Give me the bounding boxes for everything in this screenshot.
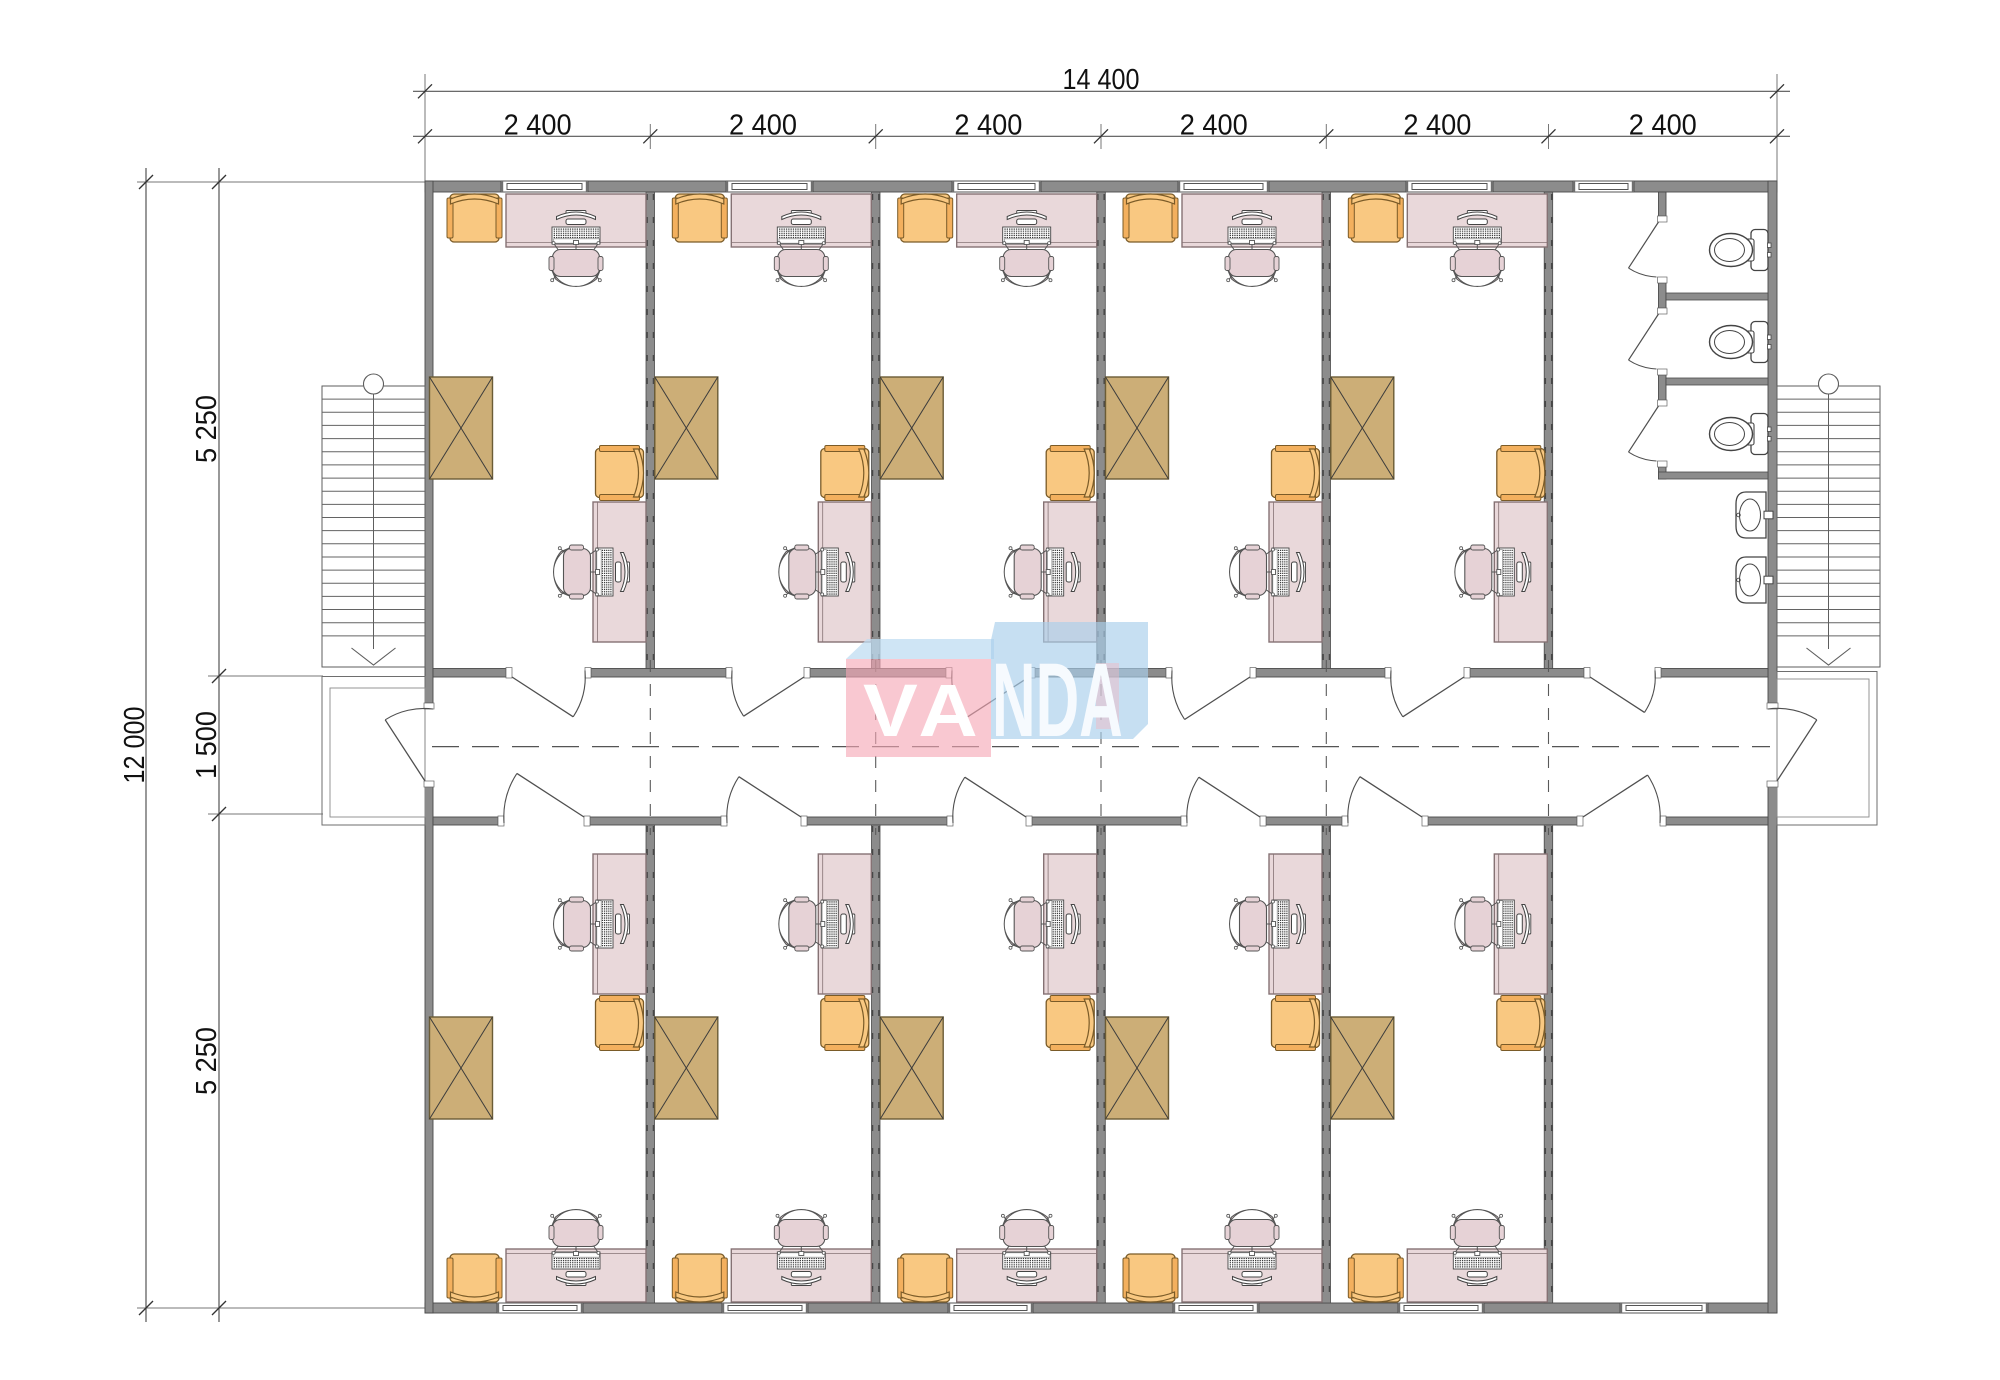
svg-text:5 250: 5 250 xyxy=(191,1027,223,1095)
svg-text:2 400: 2 400 xyxy=(1629,110,1697,142)
svg-text:2 400: 2 400 xyxy=(1180,110,1248,142)
svg-text:5 250: 5 250 xyxy=(191,395,223,463)
svg-text:2 400: 2 400 xyxy=(1403,110,1471,142)
svg-text:2 400: 2 400 xyxy=(504,110,572,142)
svg-text:NDA: NDA xyxy=(992,642,1123,760)
svg-text:VA: VA xyxy=(863,669,984,752)
svg-text:1 500: 1 500 xyxy=(191,711,223,779)
svg-text:2 400: 2 400 xyxy=(954,110,1022,142)
svg-text:12 000: 12 000 xyxy=(119,707,151,784)
svg-text:2 400: 2 400 xyxy=(729,110,797,142)
svg-text:14 400: 14 400 xyxy=(1063,64,1140,96)
